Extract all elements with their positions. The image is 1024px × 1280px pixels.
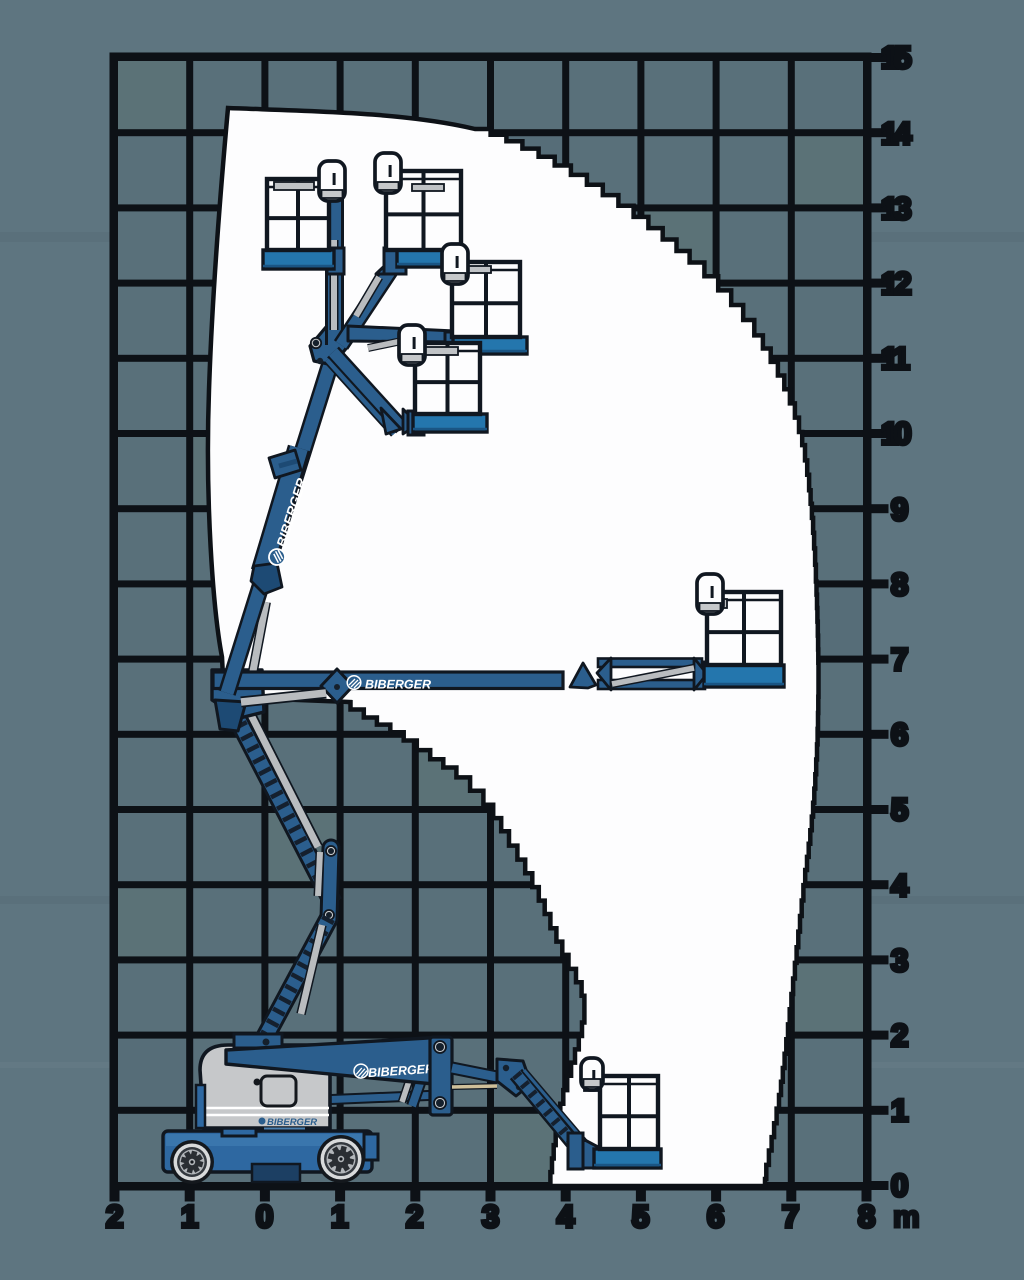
svg-text:15: 15 bbox=[881, 40, 911, 75]
svg-text:4: 4 bbox=[557, 1199, 575, 1234]
svg-text:1: 1 bbox=[331, 1199, 348, 1234]
svg-text:4: 4 bbox=[891, 868, 909, 903]
svg-text:10: 10 bbox=[881, 416, 910, 451]
svg-text:2: 2 bbox=[406, 1199, 423, 1234]
svg-text:5: 5 bbox=[632, 1199, 649, 1234]
svg-text:1: 1 bbox=[181, 1199, 198, 1234]
svg-text:12: 12 bbox=[881, 266, 910, 301]
svg-text:BIBERGER: BIBERGER bbox=[267, 1117, 317, 1128]
svg-text:6: 6 bbox=[891, 717, 908, 752]
svg-text:BIBERGER: BIBERGER bbox=[365, 678, 431, 692]
svg-text:0: 0 bbox=[256, 1199, 273, 1234]
svg-text:0: 0 bbox=[891, 1168, 908, 1203]
svg-text:9: 9 bbox=[891, 492, 908, 527]
svg-text:6: 6 bbox=[707, 1199, 724, 1234]
svg-text:8: 8 bbox=[891, 567, 908, 602]
svg-text:11: 11 bbox=[881, 341, 910, 376]
svg-text:m: m bbox=[893, 1201, 920, 1234]
svg-text:13: 13 bbox=[881, 191, 911, 226]
svg-text:8: 8 bbox=[858, 1199, 875, 1234]
svg-text:2: 2 bbox=[106, 1199, 123, 1234]
svg-text:3: 3 bbox=[482, 1199, 499, 1234]
svg-text:5: 5 bbox=[891, 792, 908, 827]
svg-text:2: 2 bbox=[891, 1018, 908, 1053]
svg-text:1: 1 bbox=[891, 1093, 908, 1128]
svg-text:7: 7 bbox=[782, 1199, 799, 1234]
svg-text:7: 7 bbox=[891, 642, 908, 677]
svg-text:3: 3 bbox=[891, 943, 908, 978]
